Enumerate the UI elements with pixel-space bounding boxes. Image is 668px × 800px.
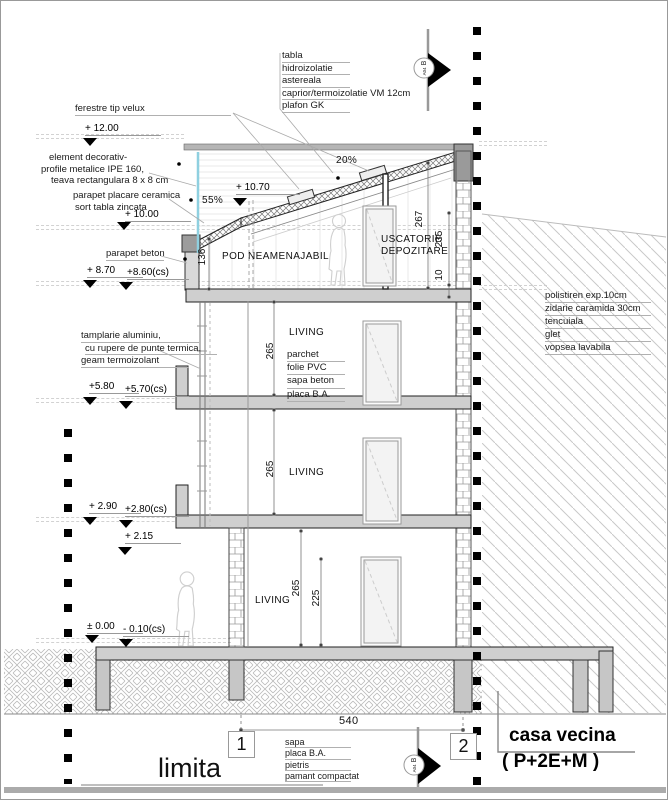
dim-225-ground: 225 [310, 576, 322, 620]
section-marker-sheet: A04 [422, 67, 427, 75]
grid-axis-2: 2 [450, 733, 477, 760]
neighbor-house-label-line2: ( P+2E+M ) [502, 751, 599, 773]
room-label-dryer: USCATORIE DEPOZITARE [381, 234, 439, 257]
floor2-door [363, 321, 401, 405]
doors [361, 206, 401, 646]
callout-line: plafon GK [282, 100, 350, 113]
level-triangle [119, 520, 133, 528]
level-570: +5.70(cs) [125, 384, 189, 397]
section-marker-bottom-text: A04 B [407, 750, 421, 780]
level-215: + 2.15 [125, 531, 181, 544]
section-marker-letter: B [411, 758, 418, 763]
level-280: +2.80(cs) [125, 504, 189, 517]
callout-line: element decorativ- [49, 152, 168, 164]
callout-line: parapet beton [106, 248, 164, 261]
callout-line: glet [545, 329, 651, 342]
level-1000: + 10.00 [125, 209, 191, 222]
grid-axis-1: 1 [228, 731, 255, 758]
neighbor-house-label-line1: casa vecina [509, 725, 616, 747]
section-marker-top-text: A04 B [417, 53, 431, 83]
window-frames-callout: tamplarie aluminiu, cu rupere de punte t… [81, 330, 217, 368]
room-label-living0: LIVING [255, 595, 290, 606]
decor-callout: element decorativ- profile metalice IPE … [41, 152, 168, 187]
callout-line: parapet placare ceramica [73, 190, 180, 202]
floor-layers-callout: parchet folie PVC sapa beton placa B.A. [287, 349, 345, 402]
ground-slab [96, 647, 613, 660]
room-label-living2: LIVING [289, 327, 324, 338]
callout-line: placa B.A. [285, 748, 351, 759]
level-triangle [118, 547, 132, 555]
dim-265-ground: 265 [290, 566, 302, 610]
sheet-bottom-rule [4, 787, 666, 793]
callout-line: teava rectangulara 8 x 8 cm [51, 175, 168, 187]
level-triangle [83, 517, 97, 525]
wall-layers-callout: polistiren exp.10cm zidarie caramida 30c… [545, 290, 651, 355]
velux-callout: ferestre tip velux [75, 103, 231, 116]
ground-door [361, 557, 401, 646]
dim-136: 136 [196, 235, 208, 279]
callout-line: caprior/termoizolatie VM 12cm [282, 88, 350, 101]
callout-line: placa B.A. [287, 389, 345, 402]
decorative-screen-top-rail [184, 144, 468, 150]
level-triangle [119, 401, 133, 409]
callout-line: cu rupere de punte termica, [85, 343, 217, 356]
room-label-dryer-line1: USCATORIE [381, 234, 439, 246]
level-010: - 0.10(cs) [123, 624, 189, 637]
callout-line: tamplarie aluminiu, [81, 330, 199, 343]
callout-line: astereala [282, 75, 350, 88]
level-triangle [119, 282, 133, 290]
callout-line: polistiren exp.10cm [545, 290, 651, 303]
grid-axis-2-label: 2 [458, 736, 468, 757]
callout-line: sapa [285, 737, 351, 748]
callout-line: pamant compactat [285, 771, 351, 782]
callout-line: parchet [287, 349, 345, 362]
callout-line: folie PVC [287, 362, 345, 375]
level-triangle [83, 280, 97, 288]
dim-265-floor2: 265 [264, 329, 276, 373]
level-1070: + 10.70 [236, 182, 300, 195]
callout-line: tencuiala [545, 316, 651, 329]
callout-line: pietris [285, 760, 351, 771]
level-triangle [83, 397, 97, 405]
foundation-layers-callout: sapa placa B.A. pietris pamant compactat [285, 737, 351, 782]
callout-line: geam termoizolant [81, 355, 189, 368]
callout-line: zidarie caramida 30cm [545, 303, 651, 316]
level-triangle [83, 138, 97, 146]
dim-10: 10 [433, 253, 445, 297]
dim-267: 267 [413, 197, 425, 241]
level-triangle [233, 198, 247, 206]
slope-label-55: 55% [202, 195, 223, 206]
level-triangle [117, 222, 131, 230]
dim-265-floor1: 265 [264, 447, 276, 491]
room-label-living1: LIVING [289, 467, 324, 478]
parapet-beton-callout: parapet beton [106, 248, 164, 261]
grid-axis-1-label: 1 [236, 734, 246, 755]
roof-layers-callout: tabla hidroizolatie astereala caprior/te… [282, 50, 350, 113]
callout-line: ferestre tip velux [75, 103, 231, 116]
level-triangle [119, 639, 133, 647]
level-triangle [85, 635, 99, 643]
level-1200: + 12.00 [85, 123, 161, 136]
section-marker-sheet: A04 [412, 764, 417, 772]
attic-slab [186, 289, 471, 302]
callout-line: vopsea lavabila [545, 342, 651, 355]
slope-label-20: 20% [336, 155, 357, 166]
floor1-slab [176, 515, 471, 528]
floor1-door [363, 438, 401, 524]
callout-line: sapa beton [287, 375, 345, 388]
level-860: +8.60(cs) [127, 267, 189, 280]
callout-line: profile metalice IPE 160, [41, 164, 168, 176]
section-marker-letter: B [421, 61, 428, 66]
callout-line: hidroizolatie [282, 63, 350, 76]
limit-label: limita [158, 753, 221, 784]
architectural-section-drawing: tabla hidroizolatie astereala caprior/te… [0, 0, 668, 800]
dim-540: 540 [339, 715, 359, 727]
room-label-dryer-line2: DEPOZITARE [381, 246, 439, 258]
callout-line: tabla [282, 50, 350, 63]
room-label-attic: POD NEAMENAJABIL [222, 251, 329, 262]
neighbor-house-hatch [482, 214, 666, 713]
